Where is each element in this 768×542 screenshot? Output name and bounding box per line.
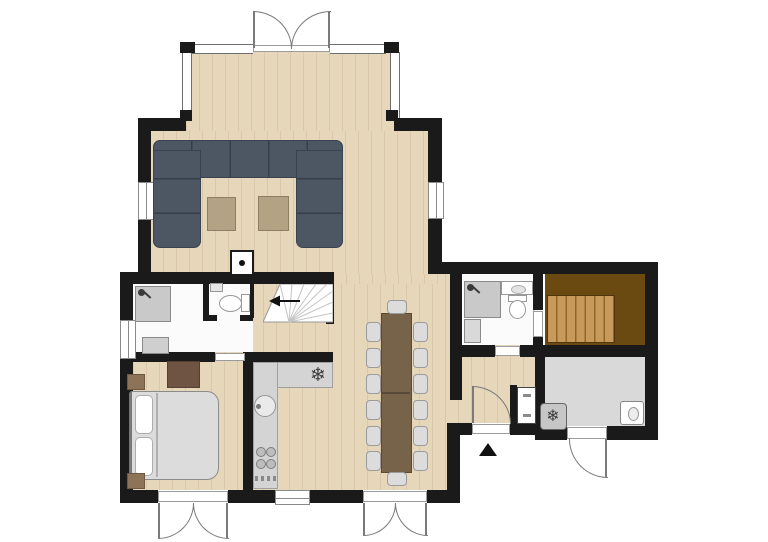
- exterior-wall: [138, 118, 151, 182]
- freezer-snowflake-icon: ❄: [541, 404, 565, 428]
- pillow: [135, 437, 153, 476]
- winder-staircase: [263, 284, 333, 324]
- utility-south-wall: [607, 426, 658, 440]
- kitchen-north-wall: [253, 352, 333, 362]
- nightstand: [127, 374, 145, 390]
- kitchen-sink: [254, 395, 276, 417]
- floor-plan: ❄ ❄: [0, 0, 768, 542]
- french-door-threshold: [158, 491, 228, 502]
- washbasin-vanity: [142, 337, 169, 354]
- stairs-south-wall: [543, 345, 645, 357]
- dining-chair: [387, 300, 407, 314]
- cooktop: [255, 446, 276, 473]
- sofa-left-arm: [153, 150, 201, 248]
- glass-wall-top-left: [192, 44, 253, 54]
- living-extension-floor: [186, 50, 394, 131]
- dining-east-wall: [447, 425, 460, 503]
- interior-wall: [120, 272, 333, 284]
- entrance-door-threshold: [472, 424, 510, 434]
- coffee-table: [207, 197, 236, 231]
- faucet-dot: [256, 404, 261, 409]
- dining-living-passage-floor: [333, 274, 445, 284]
- toilet-tank: [241, 294, 250, 312]
- dining-chair: [366, 348, 381, 368]
- french-door-threshold: [363, 491, 427, 502]
- exterior-wall: [428, 125, 442, 182]
- bathroom1-window: [120, 320, 136, 359]
- french-door-leaf: [226, 503, 228, 538]
- duvet-fold-line: [156, 393, 158, 477]
- dining-bathroom2-wall: [450, 274, 462, 345]
- entrance-marker: [479, 443, 497, 456]
- corner-post: [384, 42, 399, 53]
- toilet-bowl: [509, 300, 526, 319]
- stairs-door-opening: [533, 311, 543, 337]
- burner: [266, 447, 276, 457]
- utility-door-leaf: [605, 439, 607, 477]
- french-door-leaf: [363, 503, 365, 535]
- dresser: [167, 361, 200, 388]
- freezer: ❄: [540, 403, 567, 430]
- wood-stove: [230, 250, 254, 276]
- bedroom-door-opening: [215, 353, 245, 361]
- shower-head-icon: [467, 284, 474, 291]
- coffee-table: [258, 196, 289, 231]
- hall-stub-wall: [450, 357, 462, 400]
- pillow: [135, 395, 153, 434]
- oven-knobs: [255, 476, 276, 481]
- window-mullion: [128, 321, 129, 358]
- stove-flue-dot: [239, 260, 245, 266]
- french-door-swing: [158, 503, 194, 539]
- french-door-swing: [253, 11, 292, 49]
- dining-chair: [366, 374, 381, 394]
- burner: [256, 447, 266, 457]
- wc-east-wall: [250, 284, 254, 318]
- dining-chair: [366, 451, 381, 471]
- wc-partition: [203, 284, 209, 318]
- sofa-right-arm: [296, 150, 343, 248]
- corner-post: [180, 42, 195, 53]
- exterior-wall: [428, 262, 658, 274]
- french-door-swing: [291, 11, 331, 49]
- shower-head-icon: [138, 289, 145, 296]
- basin-oval: [628, 407, 639, 421]
- bathroom2-sink: [501, 281, 533, 295]
- exterior-wall-bottom: [228, 490, 275, 503]
- utility-door-swing: [569, 439, 608, 478]
- toilet-bowl: [219, 295, 242, 312]
- dining-chair: [413, 426, 428, 446]
- dining-table: [381, 313, 412, 473]
- french-door-swing: [395, 503, 428, 536]
- exterior-wall-right: [645, 262, 658, 440]
- french-door-swing: [193, 503, 229, 539]
- utility-door-threshold: [567, 427, 607, 439]
- living-left-window: [138, 182, 154, 220]
- wc-partition: [203, 315, 217, 321]
- meter-niche-wall: [510, 385, 517, 425]
- wc-sink: [210, 283, 223, 292]
- burner: [266, 459, 276, 469]
- window-mullion: [146, 183, 147, 219]
- meter-cabinet: [517, 387, 536, 424]
- burner: [256, 459, 266, 469]
- entrance-door-leaf: [472, 386, 474, 423]
- sink-basin: [511, 285, 526, 294]
- table-seam: [382, 392, 410, 394]
- window-mullion: [436, 183, 437, 218]
- french-door-leaf: [328, 11, 330, 48]
- french-door-leaf: [158, 503, 160, 538]
- dining-chair: [387, 472, 407, 486]
- nightstand: [127, 473, 145, 489]
- bedroom-kitchen-wall: [243, 352, 253, 503]
- wooden-staircase: [545, 274, 645, 345]
- glass-wall-left: [182, 52, 192, 118]
- dining-chair: [413, 348, 428, 368]
- dining-chair: [366, 426, 381, 446]
- fridge-snowflake-icon: ❄: [303, 362, 333, 388]
- meter-mark: [523, 394, 531, 397]
- dining-chair: [413, 374, 428, 394]
- utility-washbasin: [620, 401, 644, 425]
- dining-chair: [366, 400, 381, 420]
- exterior-wall-bottom: [308, 490, 363, 503]
- glass-wall-top-right: [330, 44, 386, 54]
- exterior-wall: [120, 272, 133, 320]
- bathroom2-cabinet: [464, 319, 481, 343]
- window-mullion: [276, 498, 309, 499]
- double-bed: [129, 391, 219, 480]
- kitchen-window: [275, 490, 310, 505]
- hall-south-wall: [447, 423, 472, 435]
- dining-chair: [413, 322, 428, 342]
- french-door-swing: [363, 503, 396, 536]
- bathroom2-door-opening: [495, 346, 520, 356]
- bathroom2-stairs-wall: [533, 337, 543, 345]
- meter-mark: [523, 414, 531, 417]
- glass-wall-right: [390, 52, 400, 118]
- bathroom2-stairs-wall: [533, 274, 543, 310]
- stair-treads: [547, 295, 615, 343]
- living-right-window: [428, 182, 444, 219]
- french-door-leaf: [253, 11, 255, 48]
- exterior-wall-bottom: [120, 490, 158, 503]
- dining-chair: [366, 322, 381, 342]
- exterior-wall: [138, 217, 151, 274]
- french-door-leaf: [425, 503, 427, 535]
- dining-chair: [413, 400, 428, 420]
- dining-chair: [413, 451, 428, 471]
- bathroom2-south-wall: [450, 345, 495, 357]
